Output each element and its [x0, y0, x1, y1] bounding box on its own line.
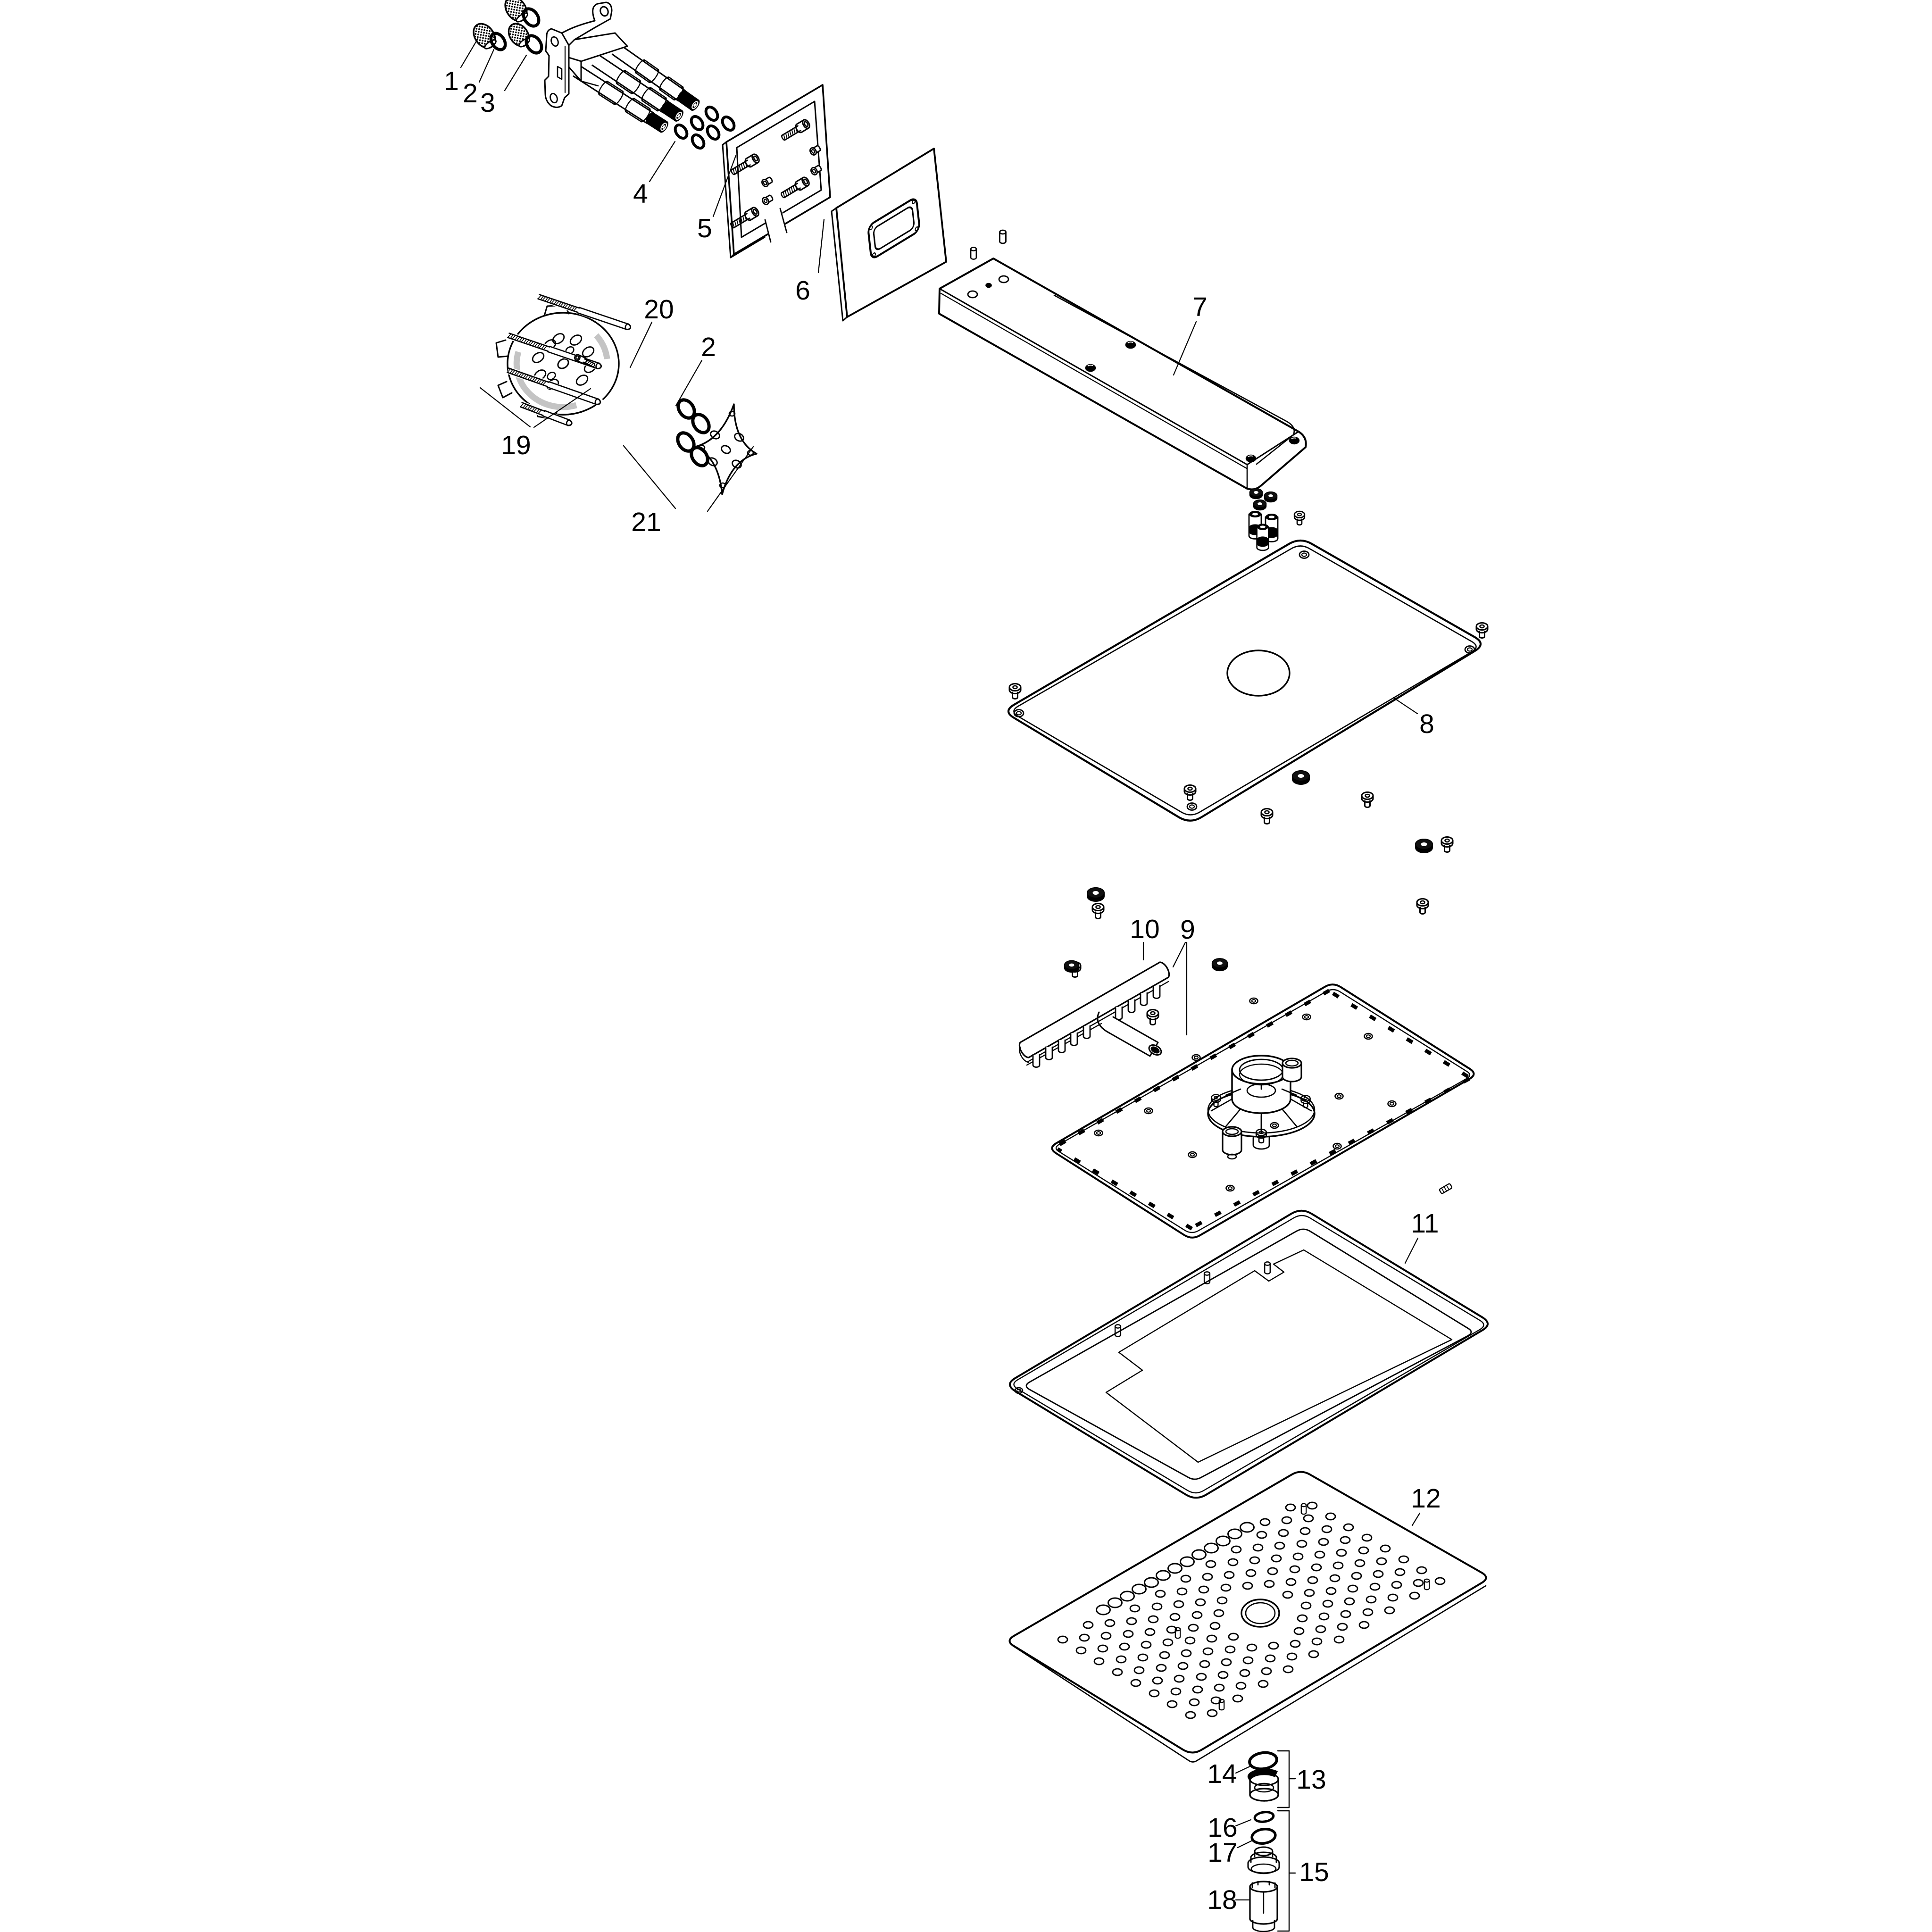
svg-text:1: 1 [444, 66, 459, 96]
svg-text:14: 14 [1207, 1759, 1237, 1789]
svg-text:20: 20 [644, 294, 674, 325]
svg-text:6: 6 [795, 275, 810, 306]
svg-text:3: 3 [480, 88, 495, 118]
svg-text:21: 21 [631, 507, 661, 537]
svg-text:13: 13 [1296, 1765, 1326, 1795]
svg-text:18: 18 [1207, 1885, 1237, 1915]
svg-text:8: 8 [1419, 709, 1434, 739]
svg-text:10: 10 [1130, 914, 1159, 944]
svg-text:2: 2 [701, 332, 716, 362]
svg-text:7: 7 [1192, 292, 1207, 322]
svg-text:4: 4 [633, 179, 648, 209]
svg-text:17: 17 [1207, 1838, 1237, 1868]
svg-text:11: 11 [1411, 1208, 1439, 1239]
svg-text:15: 15 [1299, 1857, 1329, 1887]
svg-text:2: 2 [463, 78, 478, 108]
svg-text:12: 12 [1411, 1483, 1441, 1514]
svg-text:5: 5 [697, 213, 712, 243]
svg-text:19: 19 [501, 430, 531, 460]
svg-text:9: 9 [1180, 915, 1195, 945]
